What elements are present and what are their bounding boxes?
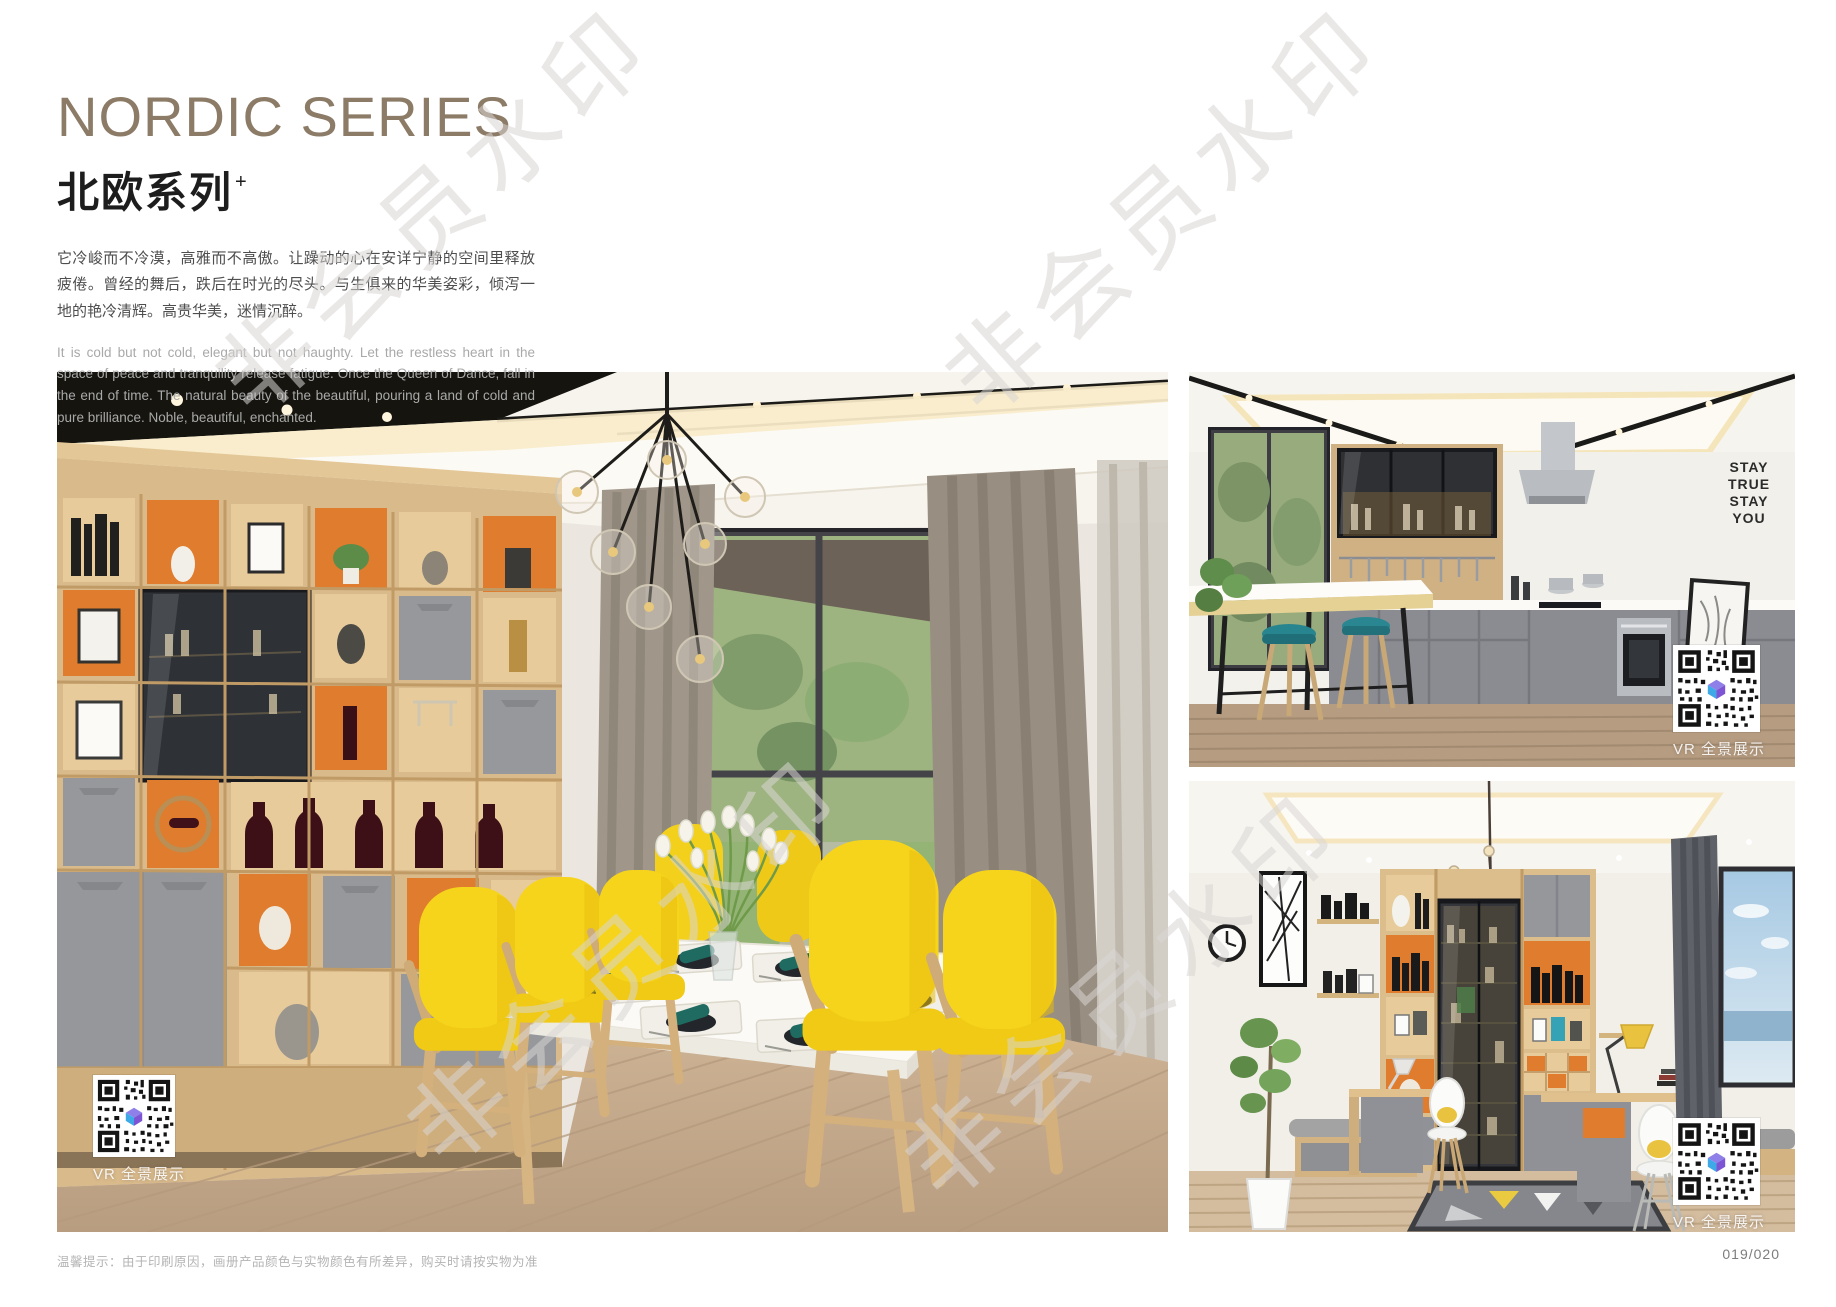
qr-code-kitchen [1673, 645, 1760, 732]
kitchen-wall-art: STAY TRUE STAY YOU [1728, 459, 1770, 526]
page-subtitle: 北欧系列+ [57, 159, 557, 220]
vr-label-kitchen: VR 全景展示 [1673, 738, 1760, 759]
vr-qr-badge-dining: VR 全景展示 [93, 1075, 175, 1184]
wall-art-line-3: STAY [1729, 493, 1768, 509]
page-subtitle-text: 北欧系列 [57, 169, 233, 216]
description-english: It is cold but not cold, elegant but not… [57, 342, 535, 428]
abstract-art-frame [1261, 873, 1305, 985]
page-number: 019/020 [1722, 1246, 1780, 1262]
vr-qr-badge-kitchen: VR 全景展示 [1673, 645, 1760, 759]
page-subtitle-plus: + [235, 171, 249, 193]
vr-label-dining: VR 全景展示 [93, 1163, 175, 1184]
wall-clock [1210, 926, 1244, 960]
wall-art-line-2: TRUE [1728, 476, 1770, 492]
kitchen-photo: STAY TRUE STAY YOU [1189, 372, 1795, 767]
header-block: NORDIC SERIES 北欧系列+ 它冷峻而不冷漠，高雅而不高傲。让躁动的心… [57, 88, 557, 428]
description-chinese: 它冷峻而不冷漠，高雅而不高傲。让躁动的心在安详宁静的空间里释放疲倦。曾经的舞后，… [57, 246, 535, 326]
study-window [1721, 869, 1795, 1085]
dining-room-scene [57, 372, 1168, 1232]
qr-code-study [1673, 1118, 1760, 1205]
wall-art-line-4: YOU [1732, 510, 1765, 526]
page-title: NORDIC SERIES [57, 88, 557, 147]
study-room-photo: VR 全景展示 [1189, 781, 1795, 1232]
catalog-page: NORDIC SERIES 北欧系列+ 它冷峻而不冷漠，高雅而不高傲。让躁动的心… [0, 0, 1836, 1307]
footer-disclaimer: 温馨提示：由于印刷原因，画册产品颜色与实物颜色有所差异，购买时请按实物为准 [57, 1251, 538, 1270]
vr-qr-badge-study: VR 全景展示 [1673, 1118, 1760, 1232]
qr-code-dining [93, 1075, 175, 1157]
vr-label-study: VR 全景展示 [1673, 1211, 1760, 1232]
wall-art-line-1: STAY [1729, 459, 1768, 475]
wall-cabinet [1331, 444, 1503, 604]
dining-room-photo: VR 全景展示 [57, 372, 1168, 1232]
